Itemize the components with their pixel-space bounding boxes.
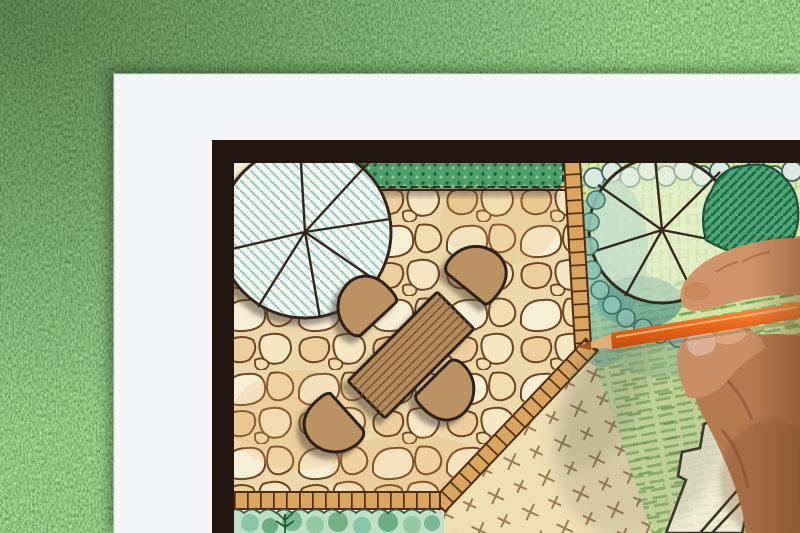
border-left: [212, 140, 234, 533]
fingertip-shading: [684, 282, 710, 300]
planting-bed: [228, 510, 444, 533]
hedge-texture: [358, 161, 563, 187]
photo-scene: [0, 0, 800, 533]
hedge: [356, 161, 566, 190]
border-top: [212, 140, 800, 163]
edging-bottom: [228, 492, 440, 509]
